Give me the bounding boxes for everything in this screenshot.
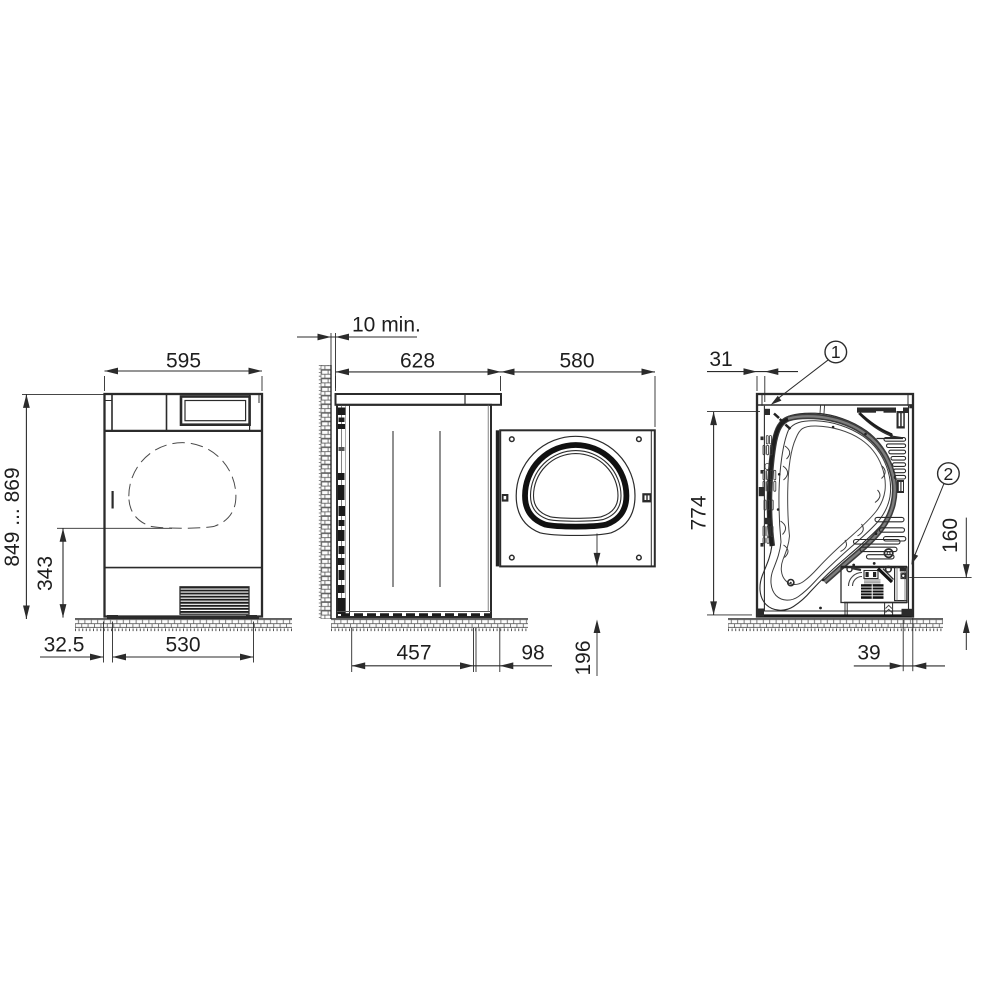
svg-text:343: 343 <box>34 556 57 591</box>
svg-text:31: 31 <box>709 348 732 371</box>
svg-text:39: 39 <box>857 642 880 665</box>
svg-text:98: 98 <box>521 642 544 665</box>
svg-text:196: 196 <box>572 640 595 675</box>
svg-text:457: 457 <box>396 642 431 665</box>
svg-text:580: 580 <box>559 350 594 373</box>
svg-text:774: 774 <box>688 495 711 530</box>
svg-text:595: 595 <box>166 350 201 373</box>
svg-text:1: 1 <box>831 342 841 362</box>
svg-text:530: 530 <box>165 634 200 657</box>
svg-text:2: 2 <box>944 464 954 484</box>
svg-text:160: 160 <box>939 518 962 553</box>
svg-text:628: 628 <box>400 350 435 373</box>
svg-text:32.5: 32.5 <box>44 634 85 657</box>
svg-text:10 min.: 10 min. <box>352 314 421 337</box>
svg-text:849 ... 869: 849 ... 869 <box>1 467 24 566</box>
